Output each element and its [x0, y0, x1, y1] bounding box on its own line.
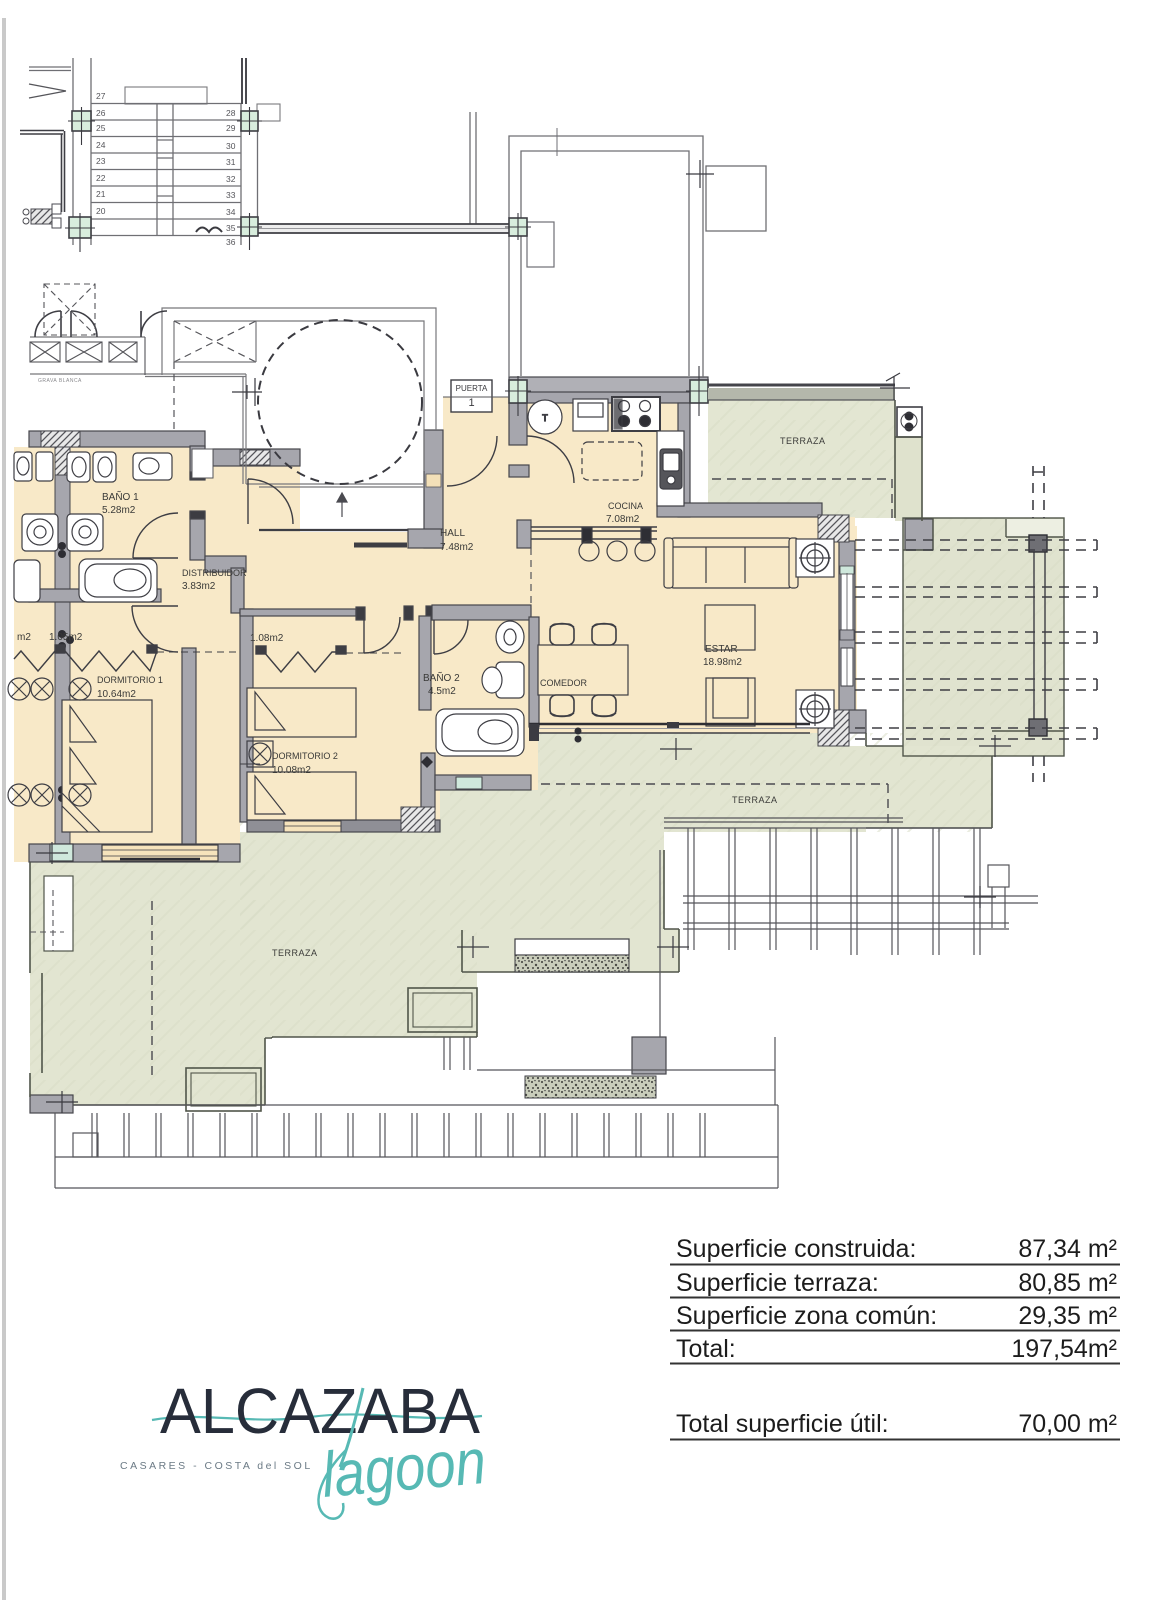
- svg-text:31: 31: [226, 157, 236, 167]
- svg-text:21: 21: [96, 189, 106, 199]
- svg-text:T: T: [542, 413, 548, 423]
- svg-text:1.08m2: 1.08m2: [250, 633, 284, 644]
- svg-text:3.83m2: 3.83m2: [182, 581, 216, 592]
- svg-text:7.48m2: 7.48m2: [440, 542, 474, 553]
- svg-text:PUERTA: PUERTA: [456, 384, 488, 393]
- svg-text:23: 23: [96, 156, 106, 166]
- svg-text:70,00 m²: 70,00 m²: [1018, 1410, 1117, 1438]
- svg-text:29,35 m²: 29,35 m²: [1018, 1302, 1117, 1330]
- svg-text:COMEDOR: COMEDOR: [540, 678, 588, 688]
- svg-text:10.64m2: 10.64m2: [97, 689, 136, 700]
- svg-text:Superficie zona común:: Superficie zona común:: [676, 1302, 937, 1330]
- svg-text:30: 30: [226, 141, 236, 151]
- svg-text:24: 24: [96, 140, 106, 150]
- svg-text:Total superficie útil:: Total superficie útil:: [676, 1410, 889, 1438]
- svg-text:32: 32: [226, 174, 236, 184]
- svg-text:36: 36: [226, 237, 236, 247]
- svg-text:22: 22: [96, 173, 106, 183]
- svg-text:Total:: Total:: [676, 1335, 736, 1363]
- svg-text:DORMITORIO 1: DORMITORIO 1: [97, 675, 163, 685]
- svg-text:Superficie terraza:: Superficie terraza:: [676, 1269, 879, 1297]
- svg-text:HALL: HALL: [440, 528, 465, 539]
- svg-text:TERRAZA: TERRAZA: [272, 948, 318, 958]
- svg-text:4.5m2: 4.5m2: [428, 686, 456, 697]
- svg-text:1: 1: [468, 397, 474, 409]
- svg-text:20: 20: [96, 206, 106, 216]
- svg-text:TERRAZA: TERRAZA: [780, 436, 826, 446]
- svg-text:lagoon: lagoon: [319, 1425, 489, 1511]
- svg-text:29: 29: [226, 123, 236, 133]
- svg-text:DORMITORIO 2: DORMITORIO 2: [272, 751, 338, 761]
- svg-text:35: 35: [226, 223, 236, 233]
- svg-text:ESTAR: ESTAR: [705, 644, 738, 655]
- svg-text:BAÑO 1: BAÑO 1: [102, 490, 139, 503]
- svg-text:197,54m²: 197,54m²: [1011, 1335, 1117, 1363]
- svg-text:5.28m2: 5.28m2: [102, 505, 136, 516]
- svg-text:1.05m2: 1.05m2: [49, 632, 83, 643]
- svg-text:m2: m2: [17, 632, 31, 643]
- svg-text:25: 25: [96, 123, 106, 133]
- svg-text:27: 27: [96, 91, 106, 101]
- svg-text:TERRAZA: TERRAZA: [732, 795, 778, 805]
- svg-text:7.08m2: 7.08m2: [606, 514, 640, 525]
- svg-text:GRAVA BLANCA: GRAVA BLANCA: [38, 378, 82, 384]
- svg-text:DISTRIBUIDOR: DISTRIBUIDOR: [182, 568, 247, 578]
- svg-text:CASARES - COSTA del SOL: CASARES - COSTA del SOL: [120, 1460, 313, 1472]
- svg-text:COCINA: COCINA: [608, 501, 643, 511]
- svg-text:Superficie construida:: Superficie construida:: [676, 1235, 916, 1263]
- svg-text:10.08m2: 10.08m2: [272, 765, 311, 776]
- svg-text:33: 33: [226, 190, 236, 200]
- svg-text:26: 26: [96, 108, 106, 118]
- svg-text:18.98m2: 18.98m2: [703, 657, 742, 668]
- svg-text:87,34 m²: 87,34 m²: [1018, 1235, 1117, 1263]
- svg-text:80,85 m²: 80,85 m²: [1018, 1269, 1117, 1297]
- svg-text:BAÑO 2: BAÑO 2: [423, 671, 460, 684]
- svg-text:28: 28: [226, 108, 236, 118]
- svg-text:34: 34: [226, 207, 236, 217]
